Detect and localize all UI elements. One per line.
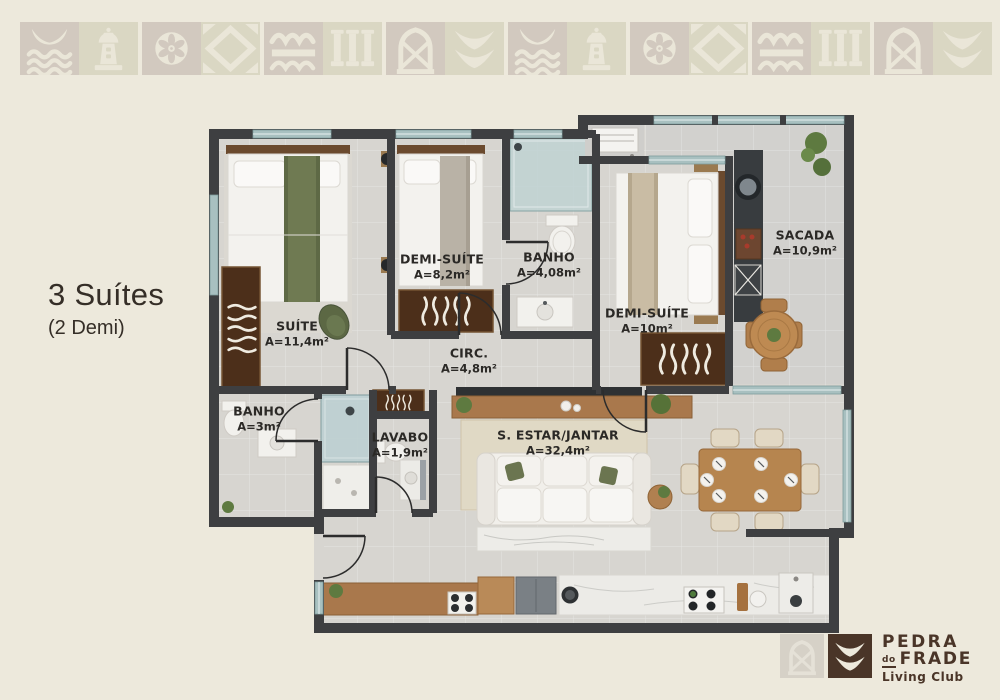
whale-tail-icon xyxy=(20,22,79,75)
decorative-tile-border xyxy=(20,22,992,75)
logo-do: do xyxy=(882,655,896,668)
entry-opening xyxy=(314,534,324,580)
rosette-icon xyxy=(142,22,201,75)
logo-wordmark: PEDRA do FRADE Living Club xyxy=(882,634,972,684)
floor-plan-drawing xyxy=(214,115,862,650)
columns-icon xyxy=(323,22,382,75)
room-label-lavabo: LAVABO A=1,9m² xyxy=(372,430,429,461)
waves-icon xyxy=(752,22,811,75)
diamond-icon xyxy=(689,22,748,75)
floor-plan: SUÍTE A=11,4m² DEMI-SUÍTE A=8,2m² BANHO … xyxy=(214,115,862,650)
logo-line-2: do FRADE xyxy=(882,651,972,668)
page-title: 3 Suítes xyxy=(48,277,164,313)
logo-frade: FRADE xyxy=(900,651,973,668)
lighthouse-icon xyxy=(567,22,626,75)
columns-icon xyxy=(811,22,870,75)
waves-icon xyxy=(264,22,323,75)
room-label-banho-1: BANHO A=4,08m² xyxy=(517,250,581,281)
gothic-arch-icon xyxy=(780,634,824,678)
page: { "title_block": { "title": "3 Suítes", … xyxy=(0,0,1000,700)
page-subtitle: (2 Demi) xyxy=(48,317,164,340)
room-label-circ: CIRC. A=4,8m² xyxy=(441,346,497,377)
whale-tail-icon xyxy=(508,22,567,75)
plan-title-block: 3 Suítes (2 Demi) xyxy=(48,277,164,340)
diamond-icon xyxy=(201,22,260,75)
swallow-icon xyxy=(828,634,872,678)
lighthouse-icon xyxy=(79,22,138,75)
room-label-suite: SUÍTE A=11,4m² xyxy=(265,319,329,350)
rosette-icon xyxy=(630,22,689,75)
logo-tagline: Living Club xyxy=(882,670,972,684)
room-label-banho-2: BANHO A=3m² xyxy=(233,404,285,435)
swallow-icon xyxy=(933,22,992,75)
room-label-demi-suite-2: DEMI-SUÍTE A=10m² xyxy=(605,306,689,337)
room-label-sacada: SACADA A=10,9m² xyxy=(773,228,837,259)
logo-bird-badge xyxy=(828,634,872,678)
brand-logo: PEDRA do FRADE Living Club xyxy=(780,634,972,684)
shower-cabin xyxy=(321,395,373,511)
logo-arch-badge xyxy=(780,634,824,678)
room-label-estar-jantar: S. ESTAR/JANTAR A=32,4m² xyxy=(497,428,619,459)
gothic-arch-icon xyxy=(386,22,445,75)
room-label-demi-suite-1: DEMI-SUÍTE A=8,2m² xyxy=(400,252,484,283)
swallow-icon xyxy=(445,22,504,75)
gothic-arch-icon xyxy=(874,22,933,75)
